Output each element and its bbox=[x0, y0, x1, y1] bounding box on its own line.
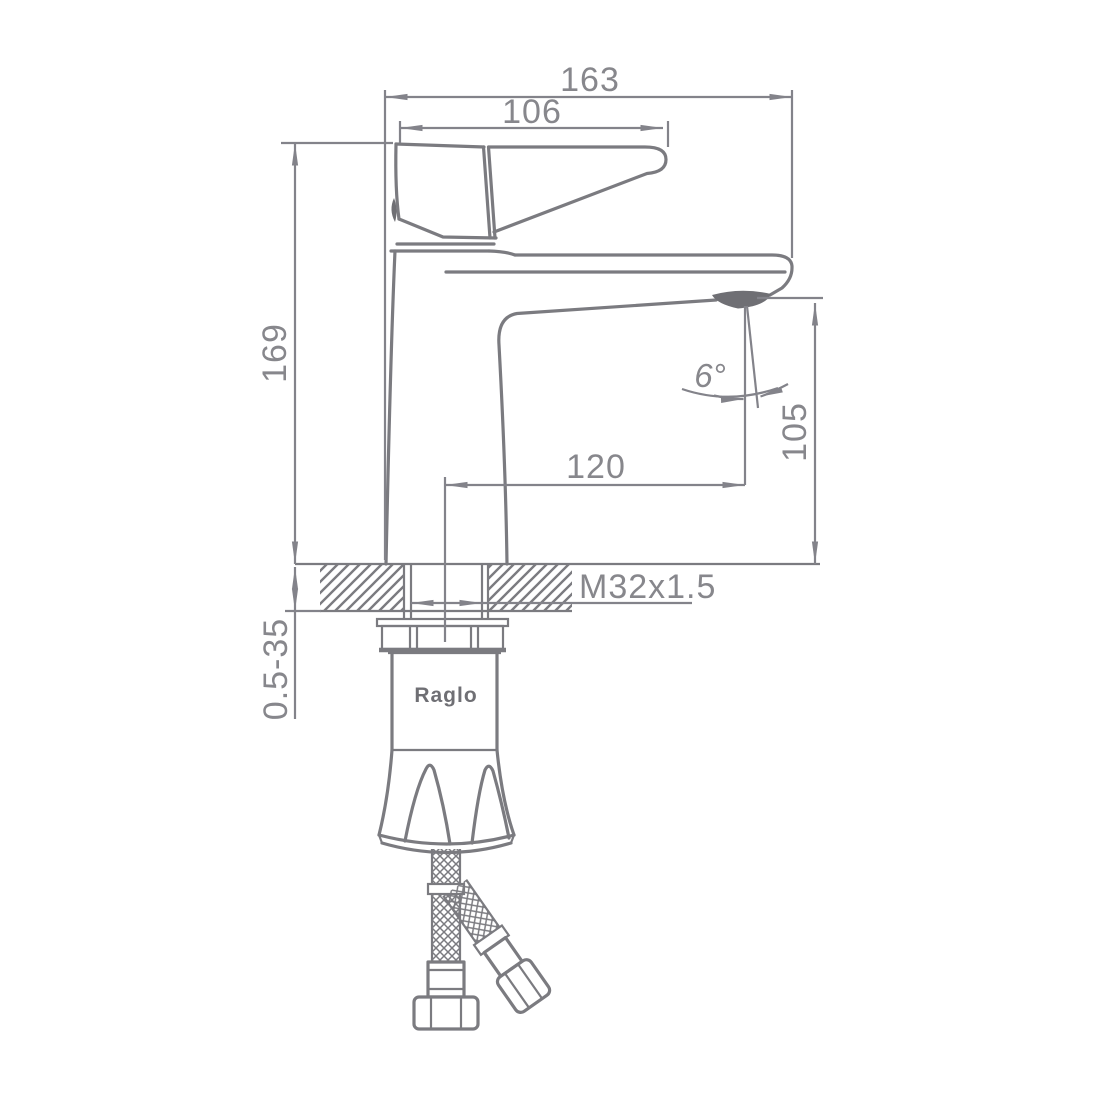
deck-thickness-label: 0.5-35 bbox=[257, 618, 295, 720]
spout bbox=[446, 255, 792, 309]
hose-hex-nut bbox=[414, 997, 478, 1029]
technical-drawing-page: Raglo bbox=[0, 0, 1100, 1100]
dim-deck-thickness: 0.5-35 bbox=[257, 567, 321, 720]
base-shoulder bbox=[399, 219, 496, 238]
overall-length-label: 163 bbox=[560, 61, 620, 99]
skirt-petal-left bbox=[405, 765, 450, 844]
riser-left-edge bbox=[386, 251, 395, 564]
hose-braid-upper bbox=[432, 849, 460, 884]
under-sink-body: Raglo bbox=[379, 653, 514, 853]
brand-logo-text: Raglo bbox=[414, 684, 477, 707]
faucet-technical-drawing: Raglo bbox=[0, 0, 1100, 1100]
collar-to-spout-curve bbox=[489, 251, 515, 255]
base-top-edge bbox=[396, 144, 484, 147]
spout-top-edge bbox=[515, 255, 792, 295]
mounting-nut bbox=[382, 626, 503, 649]
aerator bbox=[712, 291, 771, 309]
angle-arrow-right bbox=[761, 384, 789, 397]
spout-reach-label: 120 bbox=[566, 448, 626, 486]
spout-angle-label: 6° bbox=[694, 357, 726, 394]
deck-hatch-left bbox=[320, 564, 404, 611]
faucet-outline bbox=[386, 144, 792, 564]
dim-spout-height: 105 bbox=[757, 298, 823, 564]
total-height-label: 169 bbox=[256, 323, 294, 383]
riser-column bbox=[386, 251, 716, 564]
hose-braid-lower bbox=[432, 894, 460, 962]
skirt-left-edge bbox=[379, 750, 392, 835]
handle-base bbox=[391, 144, 515, 255]
dim-spout-angle: 6° bbox=[682, 306, 788, 485]
lever-wedge bbox=[489, 147, 666, 232]
dim-total-height: 169 bbox=[256, 143, 393, 564]
mounting-deck-section bbox=[295, 564, 820, 650]
thread-spec-label: M32x1.5 bbox=[579, 568, 716, 606]
hose-collar bbox=[428, 962, 464, 997]
skirt-rim-top bbox=[379, 835, 514, 844]
dim-handle-length: 106 bbox=[400, 93, 668, 147]
handle-length-label: 106 bbox=[502, 93, 562, 131]
supply-hoses bbox=[414, 849, 552, 1029]
skirt-petal-right bbox=[472, 766, 509, 843]
lever-handle bbox=[484, 147, 667, 238]
stream-line bbox=[747, 306, 758, 408]
dimension-annotations: 163 106 169 105 120 bbox=[256, 61, 823, 720]
riser-right-edge-and-spout-underside bbox=[499, 300, 716, 564]
spout-height-label: 105 bbox=[776, 402, 814, 462]
dim-spout-reach: 120 bbox=[445, 448, 745, 642]
